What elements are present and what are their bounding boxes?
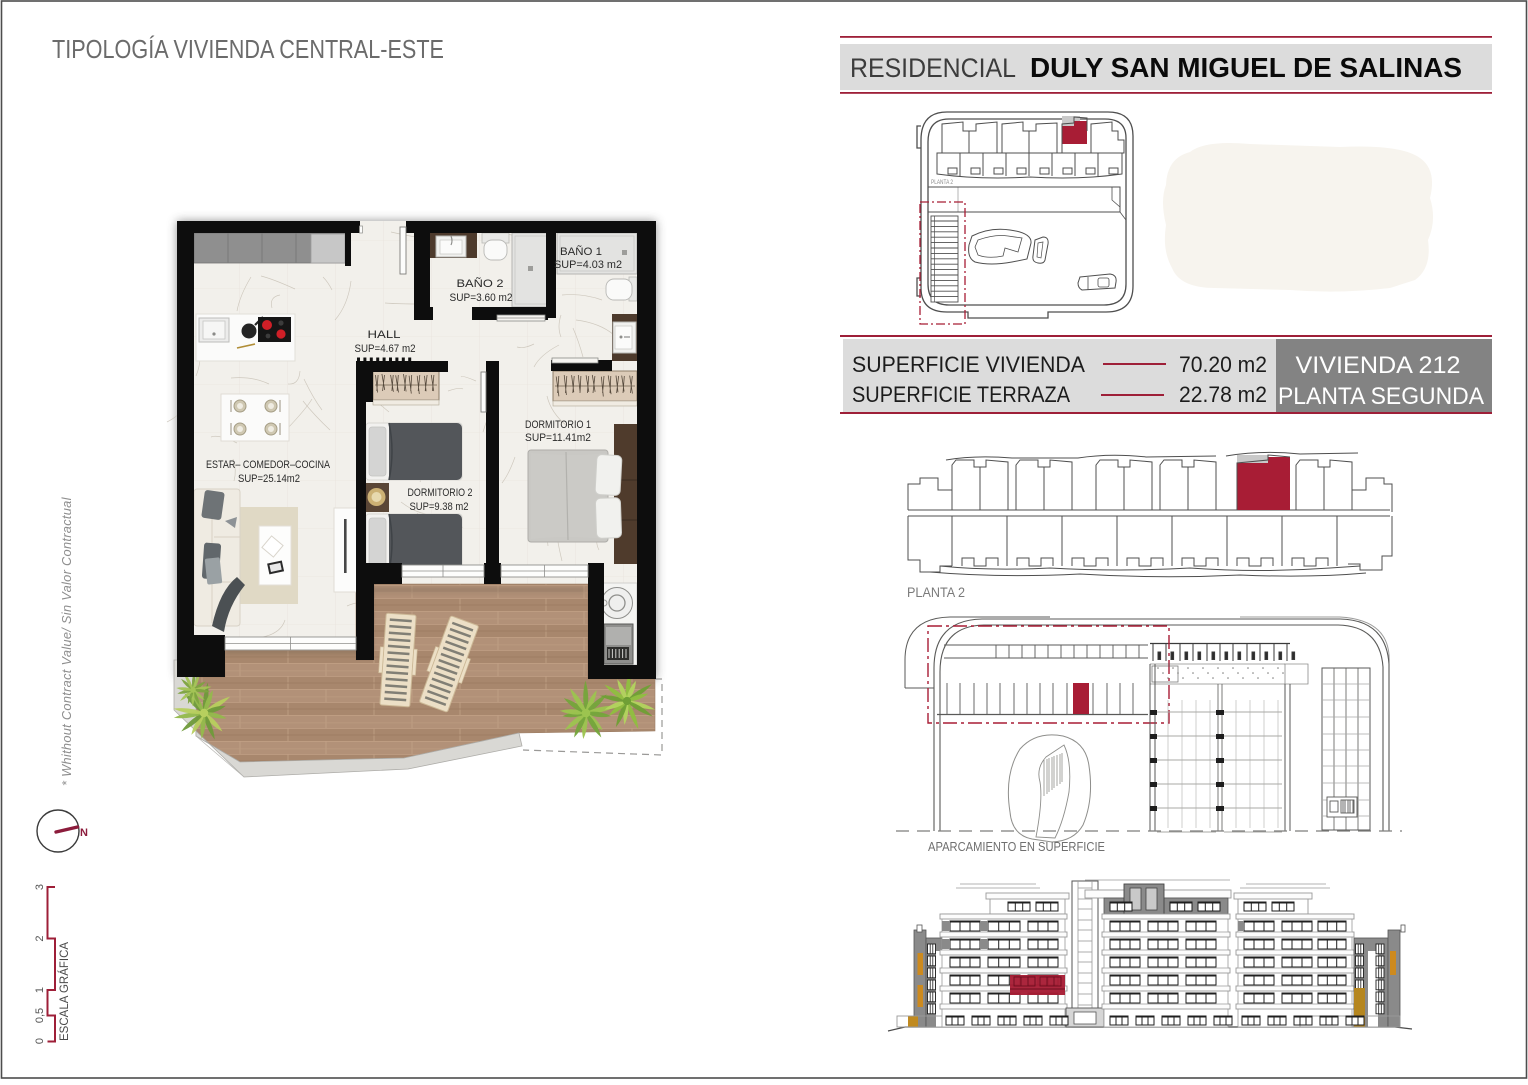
svg-text:BAÑO 2: BAÑO 2	[457, 277, 504, 290]
svg-text:RESIDENCIAL: RESIDENCIAL	[850, 53, 1016, 83]
svg-text:ESCALA GRÁFICA: ESCALA GRÁFICA	[58, 942, 71, 1041]
svg-text:SUP=9.38 m2: SUP=9.38 m2	[410, 501, 469, 513]
svg-text:PLANTA SEGUNDA: PLANTA SEGUNDA	[1278, 383, 1485, 410]
svg-text:DORMITORIO 2: DORMITORIO 2	[408, 487, 473, 499]
svg-text:PLANTA 2: PLANTA 2	[907, 585, 965, 600]
svg-text:SUPERFICIE VIVIENDA: SUPERFICIE VIVIENDA	[852, 352, 1085, 377]
svg-text:SUP=4.67 m2: SUP=4.67 m2	[355, 343, 416, 355]
svg-text:2: 2	[34, 935, 46, 941]
svg-text:PLANTA 2: PLANTA 2	[931, 179, 953, 186]
svg-text:70.20 m2: 70.20 m2	[1179, 352, 1267, 377]
svg-text:ESTAR– COMEDOR–COCINA: ESTAR– COMEDOR–COCINA	[206, 459, 331, 471]
svg-text:0,5: 0,5	[34, 1008, 46, 1023]
svg-text:DORMITORIO 1: DORMITORIO 1	[525, 419, 591, 431]
svg-text:3: 3	[34, 884, 46, 890]
svg-text:SUP=11.41m2: SUP=11.41m2	[525, 432, 591, 444]
svg-text:22.78 m2: 22.78 m2	[1179, 382, 1267, 407]
svg-text:0: 0	[34, 1038, 46, 1044]
svg-text:VIVIENDA 212: VIVIENDA 212	[1296, 352, 1461, 379]
svg-text:SUPERFICIE TERRAZA: SUPERFICIE TERRAZA	[852, 382, 1070, 407]
svg-text:TIPOLOGÍA VIVIENDA CENTRAL-EST: TIPOLOGÍA VIVIENDA CENTRAL-ESTE	[52, 34, 444, 64]
svg-text:SUP=3.60 m2: SUP=3.60 m2	[450, 292, 513, 304]
svg-text:DULY SAN MIGUEL DE SALINAS: DULY SAN MIGUEL DE SALINAS	[1030, 52, 1462, 83]
svg-text:1: 1	[34, 987, 46, 993]
svg-text:SUP=4.03 m2: SUP=4.03 m2	[554, 259, 622, 271]
svg-text:HALL: HALL	[368, 329, 401, 341]
svg-text:APARCAMIENTO EN SUPERFICIE: APARCAMIENTO EN SUPERFICIE	[928, 839, 1105, 854]
svg-text:SUP=25.14m2: SUP=25.14m2	[238, 473, 300, 485]
svg-text:BAÑO 1: BAÑO 1	[560, 245, 602, 258]
svg-text:* Whithout Contract Value/ Sin: * Whithout Contract Value/ Sin Valor Con…	[59, 496, 74, 786]
svg-text:N: N	[80, 827, 88, 839]
